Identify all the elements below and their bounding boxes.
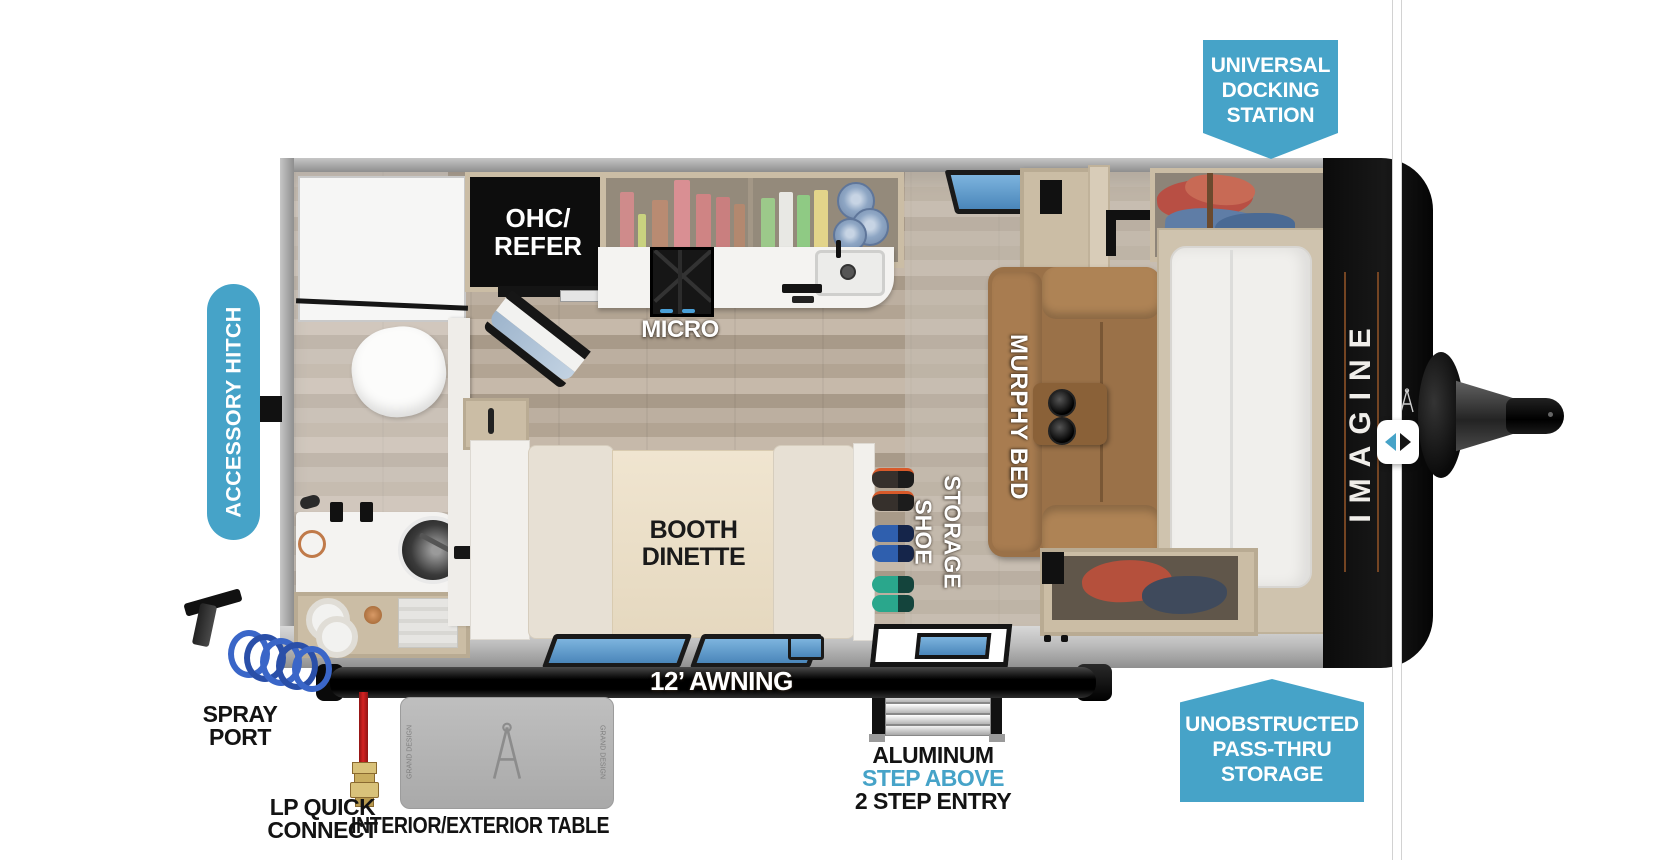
sink-drain: [840, 264, 856, 280]
shoe: [872, 595, 914, 612]
cabinet-hinge-bracket: [1042, 552, 1064, 584]
book: [620, 192, 634, 250]
step-tread: [885, 725, 991, 736]
badge-line: DOCKING: [1203, 78, 1338, 103]
stove-cooktop: [650, 247, 714, 317]
copper-ring-decor: [298, 530, 326, 558]
slider-right-arrow-icon: [1400, 433, 1411, 451]
interior-exterior-table-label: INTERIOR/EXTERIOR TABLE: [351, 814, 589, 837]
label-line-teal: STEP ABOVE: [843, 767, 1023, 790]
unobstructed-pass-thru-badge: UNOBSTRUCTED PASS-THRU STORAGE: [1180, 679, 1364, 802]
hitch-coupler: [1506, 398, 1564, 434]
cupholder: [1048, 389, 1076, 417]
sofa-armrest-top: [1042, 267, 1160, 319]
shoe: [872, 525, 914, 542]
grand-design-compass-icon: [485, 721, 529, 785]
exterior-speaker-dot: [1044, 635, 1051, 642]
book: [652, 200, 668, 250]
badge-line: UNOBSTRUCTED: [1180, 712, 1364, 737]
kitchen-faucet: [836, 240, 841, 258]
stove-knob-led: [682, 309, 695, 313]
shoe-storage-label-line1: SHOE: [910, 499, 937, 564]
dinette-backrest-left: [470, 440, 530, 640]
spray-hose-coil-icon: [228, 622, 328, 682]
accessory-hitch-receiver: [259, 396, 282, 422]
bath-faucet-handle: [360, 502, 373, 522]
compare-slider-handle[interactable]: [1377, 420, 1419, 464]
accessory-hitch-badge-label: ACCESSORY HITCH: [222, 306, 247, 517]
cabinet-books-right: [753, 178, 886, 250]
bath-divider-wall: [448, 318, 470, 626]
book: [779, 192, 793, 250]
shoe: [872, 491, 914, 511]
cabinet-slot: [488, 408, 494, 434]
exterior-speaker-dot: [1061, 635, 1068, 642]
badge-line: STORAGE: [1180, 762, 1364, 787]
imagine-brand-logo: IMAGINE: [1344, 317, 1378, 522]
book: [716, 197, 730, 250]
entry-door-window: [915, 633, 992, 659]
entry-step-label: ALUMINUM STEP ABOVE 2 STEP ENTRY: [843, 744, 1023, 813]
cabinet-books-left: [606, 178, 746, 250]
cupholder: [1048, 417, 1076, 445]
dinette-table: BOOTH DINETTE: [612, 450, 775, 638]
spray-port-label: SPRAY PORT: [165, 703, 315, 749]
book: [797, 195, 810, 250]
book: [674, 180, 690, 250]
stove-knob-led: [660, 309, 673, 313]
accessory-hitch-badge: ACCESSORY HITCH: [207, 284, 260, 540]
step-foot: [869, 734, 885, 742]
shoe: [872, 576, 914, 593]
mattress-seam: [1230, 250, 1233, 580]
copper-fitting: [364, 606, 382, 624]
ohc-refer-label-line1: OHC/: [506, 204, 571, 232]
label-line: ALUMINUM: [843, 744, 1023, 767]
dinette-window: [542, 634, 692, 668]
floorplan-canvas: OHC/ REFER: [0, 0, 1679, 860]
interior-exterior-table: [400, 697, 614, 809]
slider-left-arrow-icon: [1385, 433, 1396, 451]
universal-docking-station-badge: UNIVERSAL DOCKING STATION: [1203, 40, 1338, 133]
label-line: PORT: [165, 726, 315, 749]
lp-hose: [359, 692, 368, 764]
badge-line: STATION: [1203, 103, 1338, 128]
ohc-refer-label-line2: REFER: [494, 232, 582, 260]
book: [761, 198, 775, 250]
shoe-storage-label-line2: STORAGE: [939, 475, 966, 588]
universal-docking-station-badge-point: [1203, 133, 1338, 159]
bath-faucet-handle: [330, 502, 343, 522]
tv-mount: [1106, 210, 1116, 256]
booth-dinette-label-line2: DINETTE: [642, 544, 745, 571]
label-line: SPRAY: [165, 703, 315, 726]
badge-line: UNIVERSAL: [1203, 53, 1338, 78]
ohc-refer-box: OHC/ REFER: [465, 172, 611, 292]
trailer-rear-wall: [280, 158, 294, 668]
table-side-text: GRAND DESIGN: [599, 725, 606, 779]
dinette-bench-left: [528, 445, 614, 639]
step-tread: [885, 703, 991, 714]
counter-accessory: [792, 296, 814, 303]
bed-mattress: [1170, 246, 1312, 588]
booth-dinette-label-line1: BOOTH: [650, 517, 738, 544]
step-tread: [885, 714, 991, 725]
book: [638, 214, 646, 250]
badge-line: PASS-THRU: [1180, 737, 1364, 762]
murphy-bed-label: MURPHY BED: [1004, 334, 1032, 500]
shoe: [872, 468, 914, 488]
entry-side-window: [788, 636, 824, 660]
table-side-text: GRAND DESIGN: [407, 725, 414, 779]
micro-label: MICRO: [638, 318, 722, 341]
coupler-highlight: [1548, 412, 1553, 417]
book: [814, 190, 828, 250]
awning-label: 12’ AWNING: [650, 670, 785, 693]
dinette-bench-right: [773, 445, 855, 639]
step-foot: [989, 734, 1005, 742]
label-line: 2 STEP ENTRY: [843, 790, 1023, 813]
wardrobe-hinge-bracket: [1040, 180, 1062, 214]
book: [696, 194, 711, 250]
stored-items-blue: [1142, 576, 1227, 614]
shoe: [872, 545, 914, 562]
stove-grate: [678, 250, 682, 314]
bottom-cabinet-interior: [1052, 556, 1238, 620]
counter-accessory: [782, 284, 822, 293]
book: [734, 204, 745, 250]
coil-ring: [292, 646, 332, 692]
